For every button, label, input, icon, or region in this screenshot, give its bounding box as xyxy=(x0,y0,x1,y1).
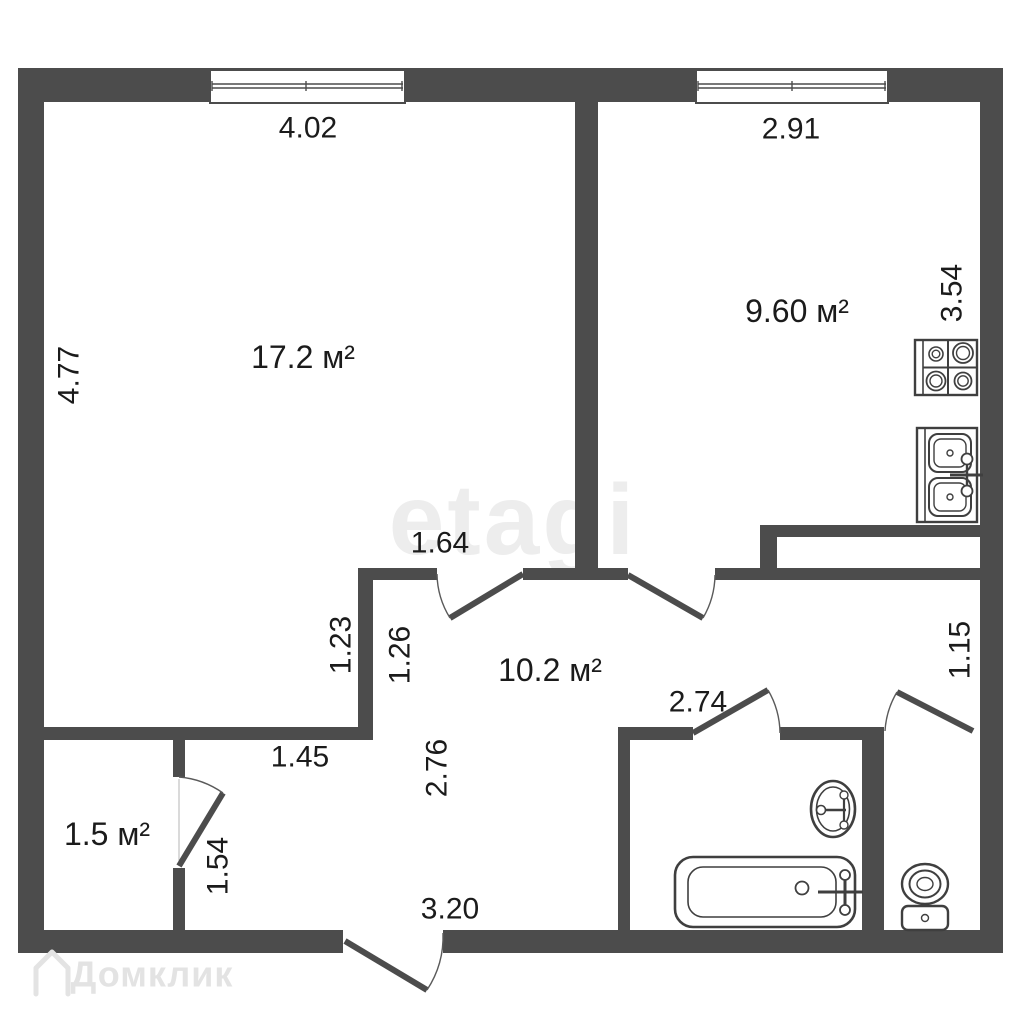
wall-duct-connector xyxy=(760,537,777,568)
wall-storage-right-bottom xyxy=(173,868,185,930)
room-label-hallway: 10.2 м² xyxy=(498,652,602,688)
wall-hall-top-c xyxy=(715,568,980,580)
window-living xyxy=(210,70,405,103)
toilet xyxy=(902,864,948,930)
wall-bath-toilet xyxy=(862,727,884,930)
doors xyxy=(179,574,973,990)
stove xyxy=(915,340,977,395)
floor-plan: etagi xyxy=(0,0,1024,1024)
dim-living-door: 1.64 xyxy=(411,527,469,560)
room-label-kitchen: 9.60 м² xyxy=(745,293,849,329)
window-kitchen xyxy=(696,70,888,103)
dim-toilet-right: 1.15 xyxy=(944,621,977,679)
door-kitchen xyxy=(628,575,715,618)
wall-hall-top-b xyxy=(523,568,628,580)
dim-living-nook: 1.23 xyxy=(325,616,358,674)
wall-kitchen-bottom xyxy=(760,525,980,537)
room-label-storage: 1.5 м² xyxy=(64,816,150,852)
wall-bath-top-a xyxy=(618,727,693,740)
watermark-domclick: Домклик xyxy=(36,952,233,995)
dim-living-left: 4.77 xyxy=(53,346,86,404)
dim-hall-top-left: 1.26 xyxy=(384,626,417,684)
watermark-domclick-text: Домклик xyxy=(71,954,234,995)
washbasin xyxy=(811,781,855,837)
wall-outer-right xyxy=(980,68,1003,953)
dim-living-top: 4.02 xyxy=(279,112,337,145)
door-entrance xyxy=(345,933,443,990)
wall-living-kitchen xyxy=(575,102,598,580)
wall-living-hall xyxy=(358,568,373,740)
dim-corridor-width: 1.45 xyxy=(271,741,329,774)
dim-kitchen-top: 2.91 xyxy=(762,113,820,146)
wall-living-bottom xyxy=(44,727,358,740)
dim-hall-bottom: 3.20 xyxy=(421,893,479,926)
wall-outer-left xyxy=(18,68,44,953)
wall-bath-left xyxy=(618,740,630,930)
room-label-living: 17.2 м² xyxy=(251,339,355,375)
kitchen-sink xyxy=(917,428,983,522)
floor-plan-canvas: etagi xyxy=(0,0,1024,1024)
bathtub xyxy=(675,857,863,927)
wall-storage-right-top xyxy=(173,740,185,777)
wall-outer-bottom-left xyxy=(18,930,343,953)
dim-kitchen-right: 3.54 xyxy=(936,264,969,322)
wall-outer-bottom-right xyxy=(443,930,1003,953)
house-icon xyxy=(36,952,68,994)
dim-bath-top: 2.74 xyxy=(669,686,727,719)
dim-storage-door: 1.54 xyxy=(202,837,235,895)
dim-hall-height: 2.76 xyxy=(421,739,454,797)
wall-bath-top-b xyxy=(780,727,862,740)
door-living xyxy=(437,574,523,618)
door-toilet xyxy=(885,692,973,731)
